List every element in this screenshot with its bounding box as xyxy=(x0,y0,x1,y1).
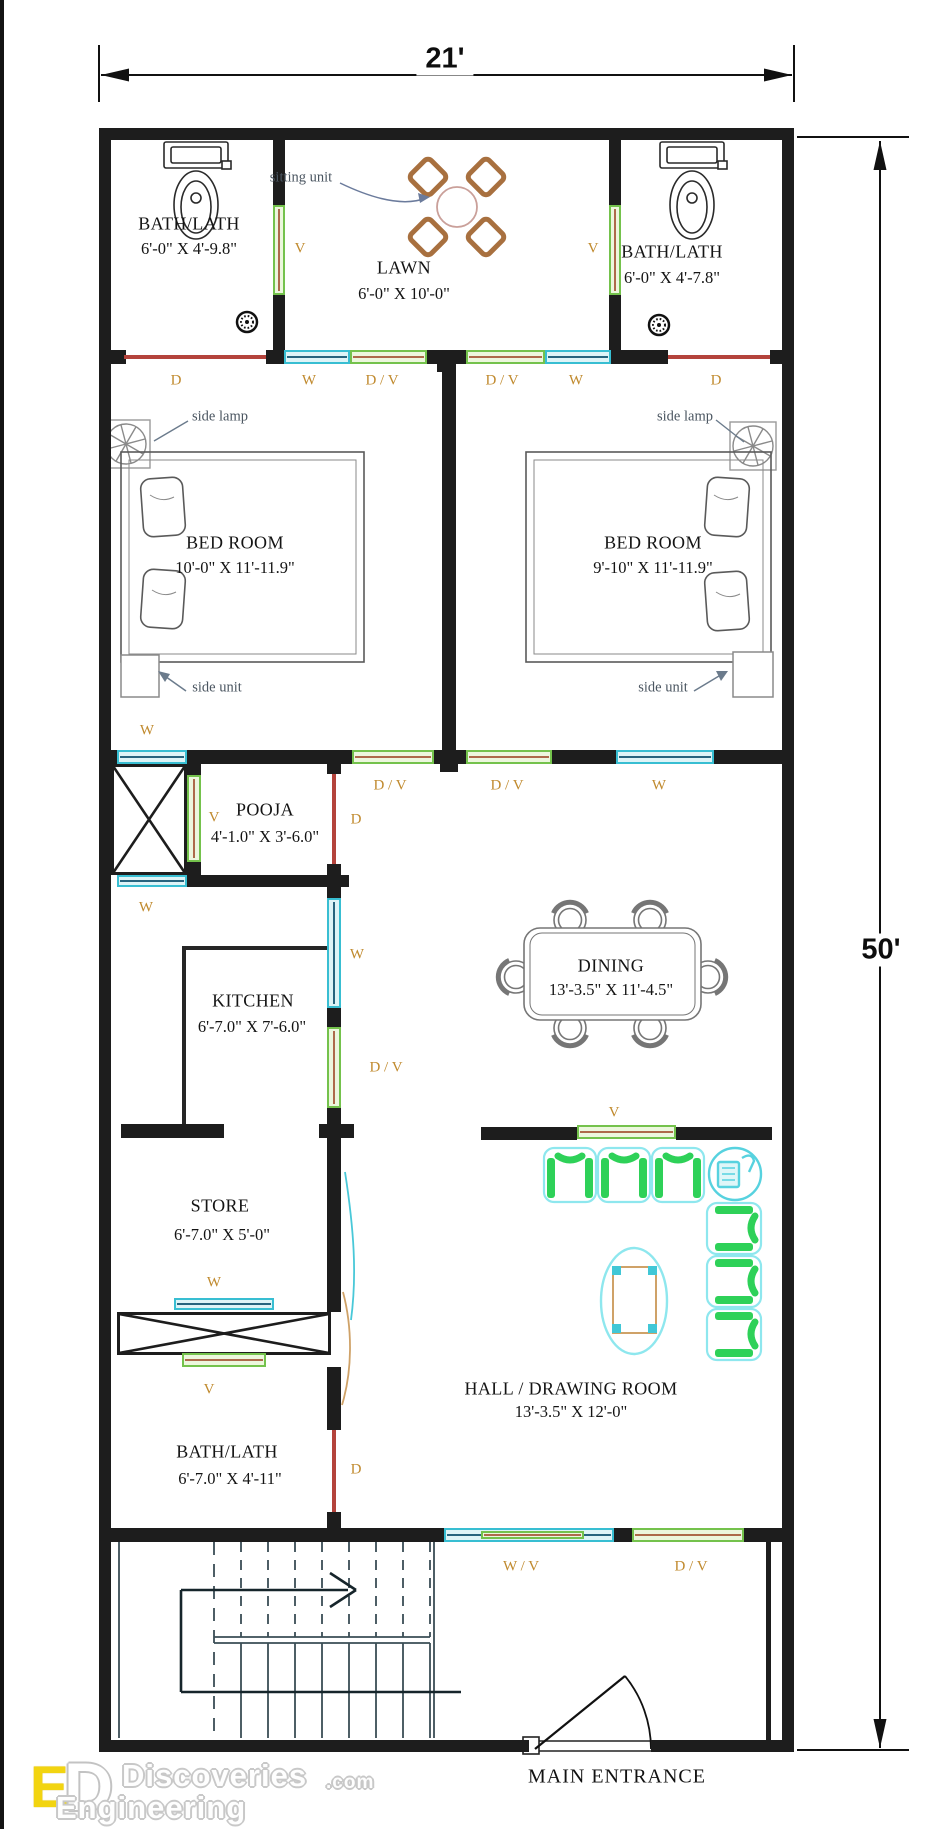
vent-strip xyxy=(632,1528,744,1542)
stair-direction-arrow xyxy=(181,1573,461,1692)
wall-segment xyxy=(481,1127,577,1140)
vent-label: V xyxy=(588,241,599,258)
room-dims-dining: 13'-3.5" X 11'-4.5" xyxy=(549,980,673,1000)
logo-engineering-text: Engineering xyxy=(56,1790,246,1826)
drain-icon-left xyxy=(237,312,257,332)
door-vent-label: D / V xyxy=(373,778,406,795)
door-swing-arcs xyxy=(342,1172,354,1405)
side-unit-label: side unit xyxy=(638,680,688,697)
wall-segment xyxy=(442,364,456,750)
side-lamp-icon-left xyxy=(104,420,188,468)
wall-segment xyxy=(266,350,284,364)
vent-strip xyxy=(466,750,552,764)
room-dims-lawn: 6'-0" X 10'-0" xyxy=(358,284,450,304)
room-name-bath-top-right: BATH/LATH xyxy=(621,242,723,263)
wall-segment xyxy=(427,350,466,364)
toilet-icon-right xyxy=(660,142,727,239)
wall-segment xyxy=(99,128,111,1752)
watermark-logo: E D Discoveries .com Engineering xyxy=(4,1748,464,1829)
vent-label: V xyxy=(209,810,220,827)
window-strip xyxy=(117,750,187,764)
room-name-bath-bottom: BATH/LATH xyxy=(176,1442,278,1463)
entrance-door xyxy=(523,1676,651,1754)
side-lamp-icon-right xyxy=(716,420,776,470)
room-dims-bath-top-left: 6'-0" X 4'-9.8" xyxy=(141,239,237,259)
window-label: W xyxy=(302,373,316,390)
height-dimension-label: 50' xyxy=(852,934,909,967)
wall-segment xyxy=(319,1124,354,1138)
door-vent-label: D / V xyxy=(365,373,398,390)
wall-segment xyxy=(440,764,458,772)
window-strip xyxy=(284,350,350,364)
door-label: D xyxy=(171,373,182,390)
vent-label: V xyxy=(295,241,306,258)
room-dims-hall: 13'-3.5" X 12'-0" xyxy=(515,1402,627,1422)
room-name-dining: DINING xyxy=(578,956,644,977)
vent-strip xyxy=(609,205,621,295)
window-label: W xyxy=(140,723,154,740)
wall-segment xyxy=(614,1528,632,1542)
coffee-table-icon xyxy=(612,1266,657,1333)
door-label: D xyxy=(351,1462,362,1479)
door-opening xyxy=(124,355,266,359)
wall-segment xyxy=(609,292,621,352)
door-vent-label: D / V xyxy=(674,1559,707,1576)
wall-segment xyxy=(782,128,794,1752)
room-name-bed-right: BED ROOM xyxy=(604,533,702,554)
wall-segment xyxy=(770,350,782,364)
corner-table-icon xyxy=(709,1148,761,1200)
side-unit-label: side unit xyxy=(192,680,242,697)
sitting-unit-label: sitting unit xyxy=(270,170,332,187)
wall-segment xyxy=(714,750,782,764)
wall-segment xyxy=(327,887,341,898)
wall-segment xyxy=(327,1367,341,1430)
vent-strip xyxy=(352,750,434,764)
vent-strip xyxy=(187,775,201,862)
room-name-hall: HALL / DRAWING ROOM xyxy=(465,1379,678,1400)
door-opening xyxy=(668,355,770,359)
logo-tld-text: .com xyxy=(326,1772,374,1794)
wall-segment xyxy=(766,1542,771,1740)
vent-strip xyxy=(577,1125,676,1139)
wall-segment xyxy=(273,292,285,352)
vent-label: V xyxy=(204,1382,215,1399)
side-lamp-label: side lamp xyxy=(192,409,248,426)
window-label: W xyxy=(350,947,364,964)
room-name-kitchen: KITCHEN xyxy=(212,991,294,1012)
wash-box xyxy=(117,1312,331,1355)
wall-segment xyxy=(327,1008,341,1027)
wall-segment xyxy=(552,750,616,764)
room-name-pooja: POOJA xyxy=(236,800,294,821)
wall-segment xyxy=(327,1160,341,1312)
wall-segment xyxy=(434,750,466,764)
vent-strip xyxy=(327,1027,341,1108)
floor-plan: BATH/LATH 6'-0" X 4'-9.8" LAWN 6'-0" X 1… xyxy=(0,0,947,1829)
door-vent-label: D / V xyxy=(369,1060,402,1077)
wall-segment xyxy=(121,1124,224,1138)
wall-segment xyxy=(187,764,201,775)
room-name-bath-top-left: BATH/LATH xyxy=(138,214,240,235)
window-strip xyxy=(174,1298,274,1310)
vent-strip xyxy=(182,1353,266,1367)
side-unit-icon-right xyxy=(694,652,773,697)
wall-segment xyxy=(327,764,341,774)
window-label: W xyxy=(652,778,666,795)
room-name-lawn: LAWN xyxy=(377,258,431,279)
width-dimension-label: 21' xyxy=(416,43,473,76)
vent-label: V xyxy=(609,1105,620,1122)
main-entrance-label: MAIN ENTRANCE xyxy=(528,1766,706,1789)
bed-icon-left xyxy=(121,452,364,662)
shaft-box xyxy=(111,764,187,875)
window-strip xyxy=(545,350,611,364)
window-strip xyxy=(327,898,341,1008)
room-name-store: STORE xyxy=(191,1196,250,1217)
window-vent-label: W / V xyxy=(503,1559,539,1576)
window-strip xyxy=(117,875,187,887)
sitting-unit-icon xyxy=(340,157,506,257)
bed-icon-right xyxy=(526,452,771,662)
door-opening xyxy=(332,774,336,864)
door-label: D xyxy=(711,373,722,390)
room-dims-bath-top-right: 6'-0" X 4'-7.8" xyxy=(624,268,720,288)
room-name-bed-left: BED ROOM xyxy=(186,533,284,554)
side-lamp-label: side lamp xyxy=(657,409,713,426)
window-label: W xyxy=(569,373,583,390)
wall-segment xyxy=(111,1528,444,1542)
room-dims-pooja: 4'-1.0" X 3'-6.0" xyxy=(211,827,319,847)
vent-strip xyxy=(273,205,285,295)
wall-segment xyxy=(744,1528,782,1542)
logo-discoveries-text: Discoveries xyxy=(122,1758,307,1794)
wall-segment xyxy=(611,350,668,364)
door-label: D xyxy=(351,812,362,829)
room-dims-bed-left: 10'-0" X 11'-11.9" xyxy=(175,558,294,578)
staircase xyxy=(119,1542,461,1738)
vent-strip xyxy=(350,350,427,364)
room-dims-bed-right: 9'-10" X 11'-11.9" xyxy=(593,558,712,578)
window-label: W xyxy=(139,900,153,917)
wall-segment xyxy=(187,875,349,887)
vent-strip xyxy=(481,1531,584,1539)
vent-strip xyxy=(466,350,545,364)
room-dims-kitchen: 6'-7.0" X 7'-6.0" xyxy=(198,1017,306,1037)
wall-segment xyxy=(327,1512,341,1528)
door-opening xyxy=(332,1430,336,1512)
drain-icon-right xyxy=(649,315,669,335)
door-vent-label: D / V xyxy=(485,373,518,390)
wall-segment xyxy=(676,1127,772,1140)
door-vent-label: D / V xyxy=(490,778,523,795)
wall-segment xyxy=(651,1740,794,1752)
room-dims-bath-bottom: 6'-7.0" X 4'-11" xyxy=(178,1469,282,1489)
wall-segment xyxy=(99,128,794,140)
wall-segment xyxy=(187,750,352,764)
wall-segment xyxy=(609,140,621,208)
window-strip xyxy=(616,750,714,764)
room-dims-store: 6'-7.0" X 5'-0" xyxy=(174,1225,270,1245)
window-label: W xyxy=(207,1275,221,1292)
